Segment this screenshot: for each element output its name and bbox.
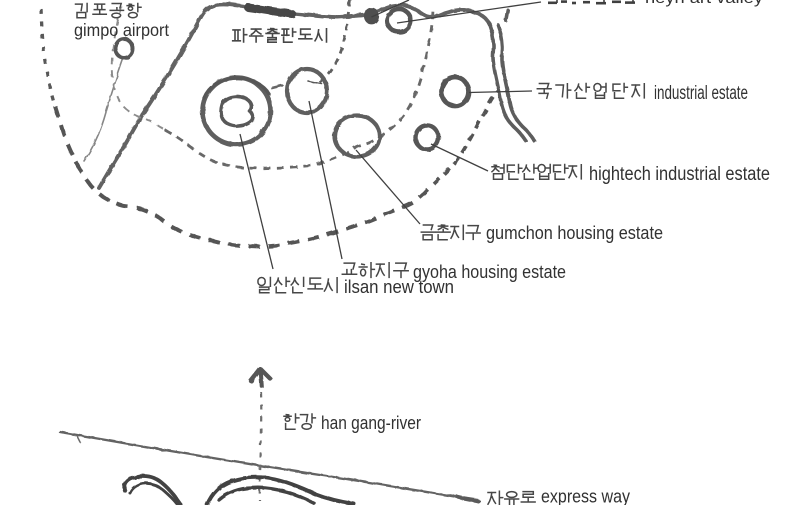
svg-text:express way: express way	[541, 487, 630, 505]
svg-text:han gang-river: han gang-river	[321, 412, 421, 433]
svg-text:hightech industrial estate: hightech industrial estate	[589, 164, 770, 185]
svg-text:gumchon housing estate: gumchon housing estate	[486, 223, 663, 243]
svg-text:industrial estate: industrial estate	[654, 83, 748, 104]
svg-text:gimpo airport: gimpo airport	[74, 20, 169, 40]
svg-text:ilsan new town: ilsan new town	[344, 277, 454, 297]
svg-text:heyri art valley: heyri art valley	[645, 0, 763, 7]
